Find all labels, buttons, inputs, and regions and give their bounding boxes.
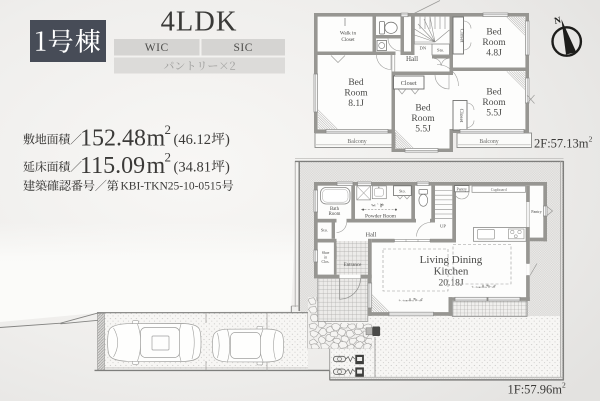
svg-text:5.5J: 5.5J — [486, 109, 502, 119]
svg-text:Room: Room — [329, 212, 341, 217]
svg-text:UP: UP — [440, 224, 446, 229]
svg-text:): ) — [225, 160, 230, 176]
svg-text:115.09: 115.09 — [80, 153, 145, 179]
svg-text:Living Dining: Living Dining — [420, 254, 483, 266]
svg-text:(34.81: (34.81 — [174, 160, 211, 176]
svg-text:Walk in: Walk in — [340, 31, 357, 37]
svg-text:in: in — [324, 256, 327, 260]
svg-text:Bed: Bed — [486, 28, 502, 38]
svg-text:4.8J: 4.8J — [486, 49, 502, 59]
svg-text:20.18J: 20.18J — [438, 279, 463, 289]
svg-text:Pantry: Pantry — [456, 186, 466, 191]
svg-text:2: 2 — [165, 122, 172, 137]
svg-text:8.1J: 8.1J — [348, 99, 364, 109]
svg-text:Closet: Closet — [341, 37, 355, 43]
svg-text:m: m — [147, 126, 166, 152]
svg-text:Bed: Bed — [486, 88, 502, 98]
svg-text:Room: Room — [482, 38, 506, 48]
svg-text:1F:57.96m: 1F:57.96m — [508, 382, 563, 396]
svg-text:Room: Room — [344, 89, 368, 99]
svg-text:Sto.: Sto. — [321, 228, 328, 233]
svg-text:Balcony: Balcony — [479, 139, 498, 145]
svg-text:WIC: WIC — [145, 42, 169, 54]
svg-text:Pantry: Pantry — [531, 209, 541, 214]
svg-text:KBI-TKN25-10-0515: KBI-TKN25-10-0515 — [121, 181, 222, 193]
svg-text:Kitchen: Kitchen — [434, 266, 469, 278]
svg-text:Sto.: Sto. — [399, 189, 406, 194]
svg-text:Room: Room — [482, 98, 506, 108]
svg-text:Entrance: Entrance — [344, 263, 363, 268]
svg-text:2: 2 — [562, 380, 566, 389]
svg-text:Room: Room — [411, 114, 435, 124]
svg-text:SIC: SIC — [233, 42, 252, 54]
svg-text:2: 2 — [165, 150, 172, 165]
svg-text:DN: DN — [420, 46, 427, 51]
svg-text:Bed: Bed — [348, 78, 364, 88]
svg-text:Hall: Hall — [366, 232, 377, 239]
svg-text:152.48: 152.48 — [80, 126, 146, 152]
svg-text:Shoe: Shoe — [322, 251, 330, 255]
svg-text:Balcony: Balcony — [347, 139, 366, 145]
svg-text:(46.12: (46.12 — [174, 132, 211, 148]
svg-text:5.5J: 5.5J — [415, 125, 431, 135]
svg-text:Powder Room: Powder Room — [365, 213, 397, 219]
svg-text:4LDK: 4LDK — [161, 7, 238, 38]
svg-text:Sto.: Sto. — [437, 48, 444, 53]
svg-text:Cupboard: Cupboard — [491, 187, 507, 192]
svg-text:2: 2 — [589, 135, 593, 144]
svg-text:Closet: Closet — [401, 80, 417, 87]
svg-text:2F:57.13m: 2F:57.13m — [534, 137, 589, 151]
svg-text:Hall: Hall — [406, 55, 418, 63]
svg-text:Closet: Closet — [458, 109, 464, 123]
svg-text:): ) — [225, 132, 230, 148]
svg-text:Clos.: Clos. — [322, 260, 330, 264]
svg-text:m: m — [147, 153, 166, 179]
svg-text:Bed: Bed — [415, 104, 431, 114]
svg-text:Closet: Closet — [458, 29, 464, 43]
